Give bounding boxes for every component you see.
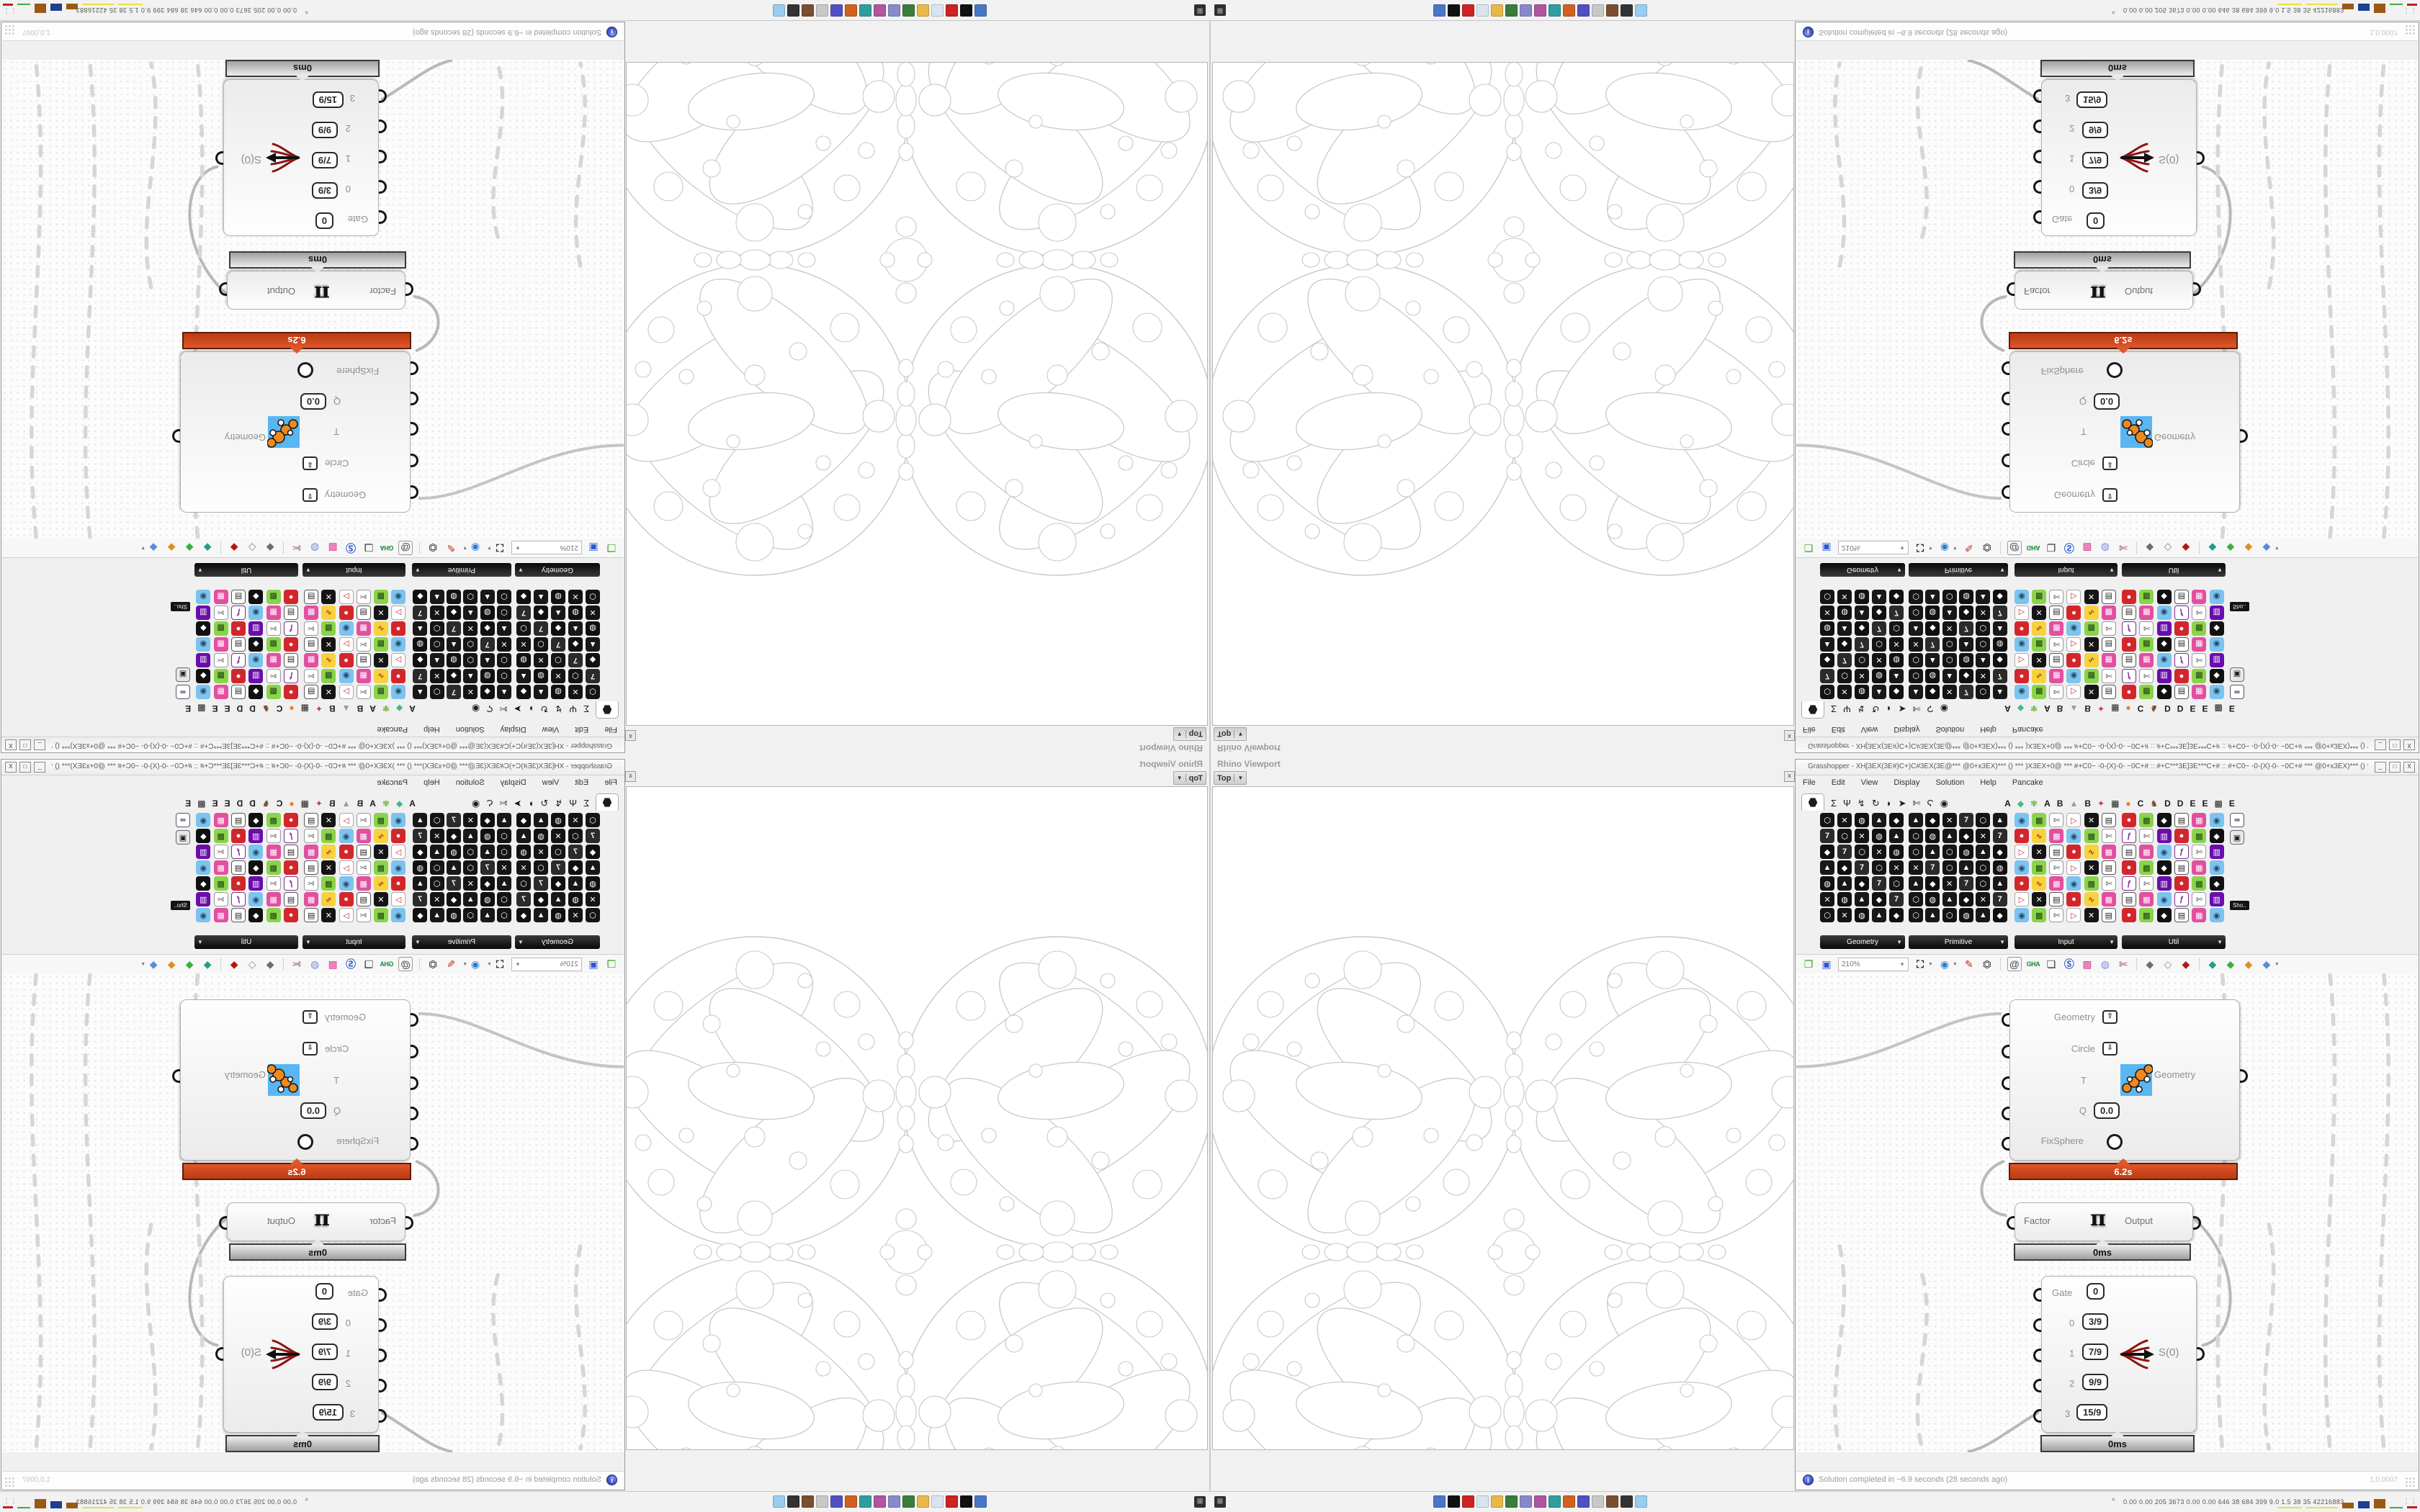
palette-component-icon[interactable]: ● xyxy=(284,908,298,922)
palette-component-icon[interactable]: ▷ xyxy=(2015,845,2029,859)
palette-component-icon[interactable]: ⬡ xyxy=(1872,860,1886,875)
package-icon[interactable]: ▩ xyxy=(2081,958,2094,971)
palette-component-icon[interactable]: ▷ xyxy=(2015,653,2029,667)
palette-component-icon[interactable]: ✕ xyxy=(2032,606,2046,620)
palette-component-icon[interactable]: ✕ xyxy=(568,590,583,604)
palette-component-icon[interactable]: 7 xyxy=(1820,829,1834,843)
palette-component-icon[interactable]: ◆ xyxy=(1925,685,1940,699)
palette-component-icon[interactable]: ▦ xyxy=(2139,892,2154,906)
palette-component-icon[interactable]: ▦ xyxy=(2102,606,2116,620)
palette-component-icon[interactable]: ● xyxy=(2174,669,2189,683)
tab-plugin-15[interactable]: E xyxy=(2202,701,2208,716)
tab-plugin-4[interactable]: B xyxy=(2057,796,2063,811)
palette-component-icon[interactable]: 7 xyxy=(1959,813,1973,827)
menu-item-view[interactable]: View xyxy=(1861,721,1878,734)
gate-value-box[interactable]: 3/9 xyxy=(2082,1313,2108,1330)
palette-component-icon[interactable]: ▩ xyxy=(2192,621,2206,636)
palette-component-icon[interactable]: ◍ xyxy=(1959,908,1973,922)
palette-component-icon[interactable]: ◍ xyxy=(1855,685,1869,699)
palette-component-icon[interactable]: ▦ xyxy=(2192,590,2206,604)
palette-component-icon[interactable]: ∿ xyxy=(2032,829,2046,843)
palette-component-icon[interactable]: ▲ xyxy=(551,606,565,620)
close-button[interactable]: X xyxy=(5,762,17,773)
palette-component-icon[interactable]: ● xyxy=(2015,621,2029,636)
gate-value-box[interactable]: 15/9 xyxy=(2076,91,2107,108)
palette-component-icon[interactable]: ◆ xyxy=(196,621,210,636)
taskbar-app-icon[interactable] xyxy=(1491,1495,1503,1508)
palette-component-icon[interactable]: ▦ xyxy=(357,876,371,891)
taskbar-app-icon[interactable] xyxy=(787,4,799,17)
palette-component-icon[interactable]: ◍ xyxy=(1959,845,1973,859)
palette-component-icon[interactable]: ◍ xyxy=(447,845,461,859)
palette-component-icon[interactable]: ▤ xyxy=(2049,653,2063,667)
palette-component-icon[interactable]: ◍ xyxy=(586,621,600,636)
menu-item-pancake[interactable]: Pancake xyxy=(377,721,408,734)
palette-component-icon[interactable]: ∿ xyxy=(321,653,336,667)
palette-component-icon[interactable]: ✕ xyxy=(1909,860,1923,875)
palette-component-icon[interactable]: ◍ xyxy=(1889,653,1904,667)
palette-component-icon[interactable]: ◆ xyxy=(196,669,210,683)
palette-component-icon[interactable]: ▩ xyxy=(2192,829,2206,843)
chevron-down-icon[interactable]: ▼ xyxy=(487,962,492,967)
palette-component-icon[interactable]: ⬡ xyxy=(1976,685,1990,699)
palette-component-icon[interactable]: ▦ xyxy=(266,653,281,667)
palette-component-icon[interactable]: ▩ xyxy=(2192,669,2206,683)
palette-component-icon[interactable]: ▦ xyxy=(2049,876,2063,891)
palette-component-icon[interactable]: ⬡ xyxy=(1909,669,1923,683)
palette-component-icon[interactable]: 7 xyxy=(1993,669,2007,683)
palette-component-icon[interactable]: ● xyxy=(339,606,354,620)
tab-plugin-4[interactable]: B xyxy=(357,796,364,811)
taskbar-app-icon[interactable] xyxy=(917,1495,929,1508)
fixsphere-toggle[interactable] xyxy=(2107,362,2123,378)
focus-extents-icon[interactable]: ⛶ xyxy=(1914,541,1927,554)
palette-component-icon[interactable]: ⬡ xyxy=(1837,669,1852,683)
palette-component-icon[interactable]: ⬡ xyxy=(497,845,511,859)
gate-value-box[interactable]: 15/9 xyxy=(313,91,344,108)
palette-component-icon[interactable]: ◉ xyxy=(2157,892,2172,906)
gha-assembler-icon[interactable]: GHA xyxy=(380,541,393,554)
palette-component-icon[interactable]: ◆ xyxy=(1959,606,1973,620)
palette-component-icon[interactable]: ✕ xyxy=(497,637,511,652)
taskbar-app-icon[interactable] xyxy=(1520,4,1532,17)
palette-component-icon[interactable]: ⬡ xyxy=(534,637,548,652)
menu-item-display[interactable]: Display xyxy=(501,778,526,791)
palette-component-icon[interactable]: ◉ xyxy=(2066,621,2081,636)
palette-component-icon[interactable]: ◉ xyxy=(2015,637,2029,652)
taskbar-app-icon[interactable] xyxy=(787,1495,799,1508)
palette-component-icon[interactable]: ● xyxy=(391,829,405,843)
palette-component-icon[interactable]: 7 xyxy=(586,829,600,843)
palette-component-icon[interactable]: ⬡ xyxy=(1909,590,1923,604)
palette-component-icon[interactable]: ▲ xyxy=(1993,685,2007,699)
palette-component-icon[interactable]: ⬡ xyxy=(1976,876,1990,891)
maximize-button[interactable]: □ xyxy=(2389,739,2401,750)
component-pi[interactable]: Factor π Output 0ms xyxy=(227,271,405,310)
palette-component-icon[interactable]: ▤ xyxy=(304,813,318,827)
palette-component-icon[interactable]: ◍ xyxy=(551,685,565,699)
tab-plugin-3[interactable]: A xyxy=(369,701,376,716)
component-pi[interactable]: Factor π Output 0ms xyxy=(2015,1202,2193,1241)
palette-component-icon[interactable]: ✄ xyxy=(2049,813,2063,827)
palette-component-icon[interactable]: ◉ xyxy=(391,860,405,875)
palette-component-icon[interactable]: ƒ xyxy=(231,606,246,620)
grasshopper-titlebar[interactable]: Grasshopper - XH[3EX(3E#)C+)C#3EX(3E@***… xyxy=(1796,737,2419,752)
palette-component-icon[interactable]: ✕ xyxy=(321,908,336,922)
tab-plugin-13[interactable]: D xyxy=(2177,796,2184,811)
taskbar-app-icon[interactable] xyxy=(1621,4,1633,17)
palette-component-icon[interactable]: ◍ xyxy=(1855,590,1869,604)
component-fixcircles[interactable]: Geometry ⇧ Circle ⇩ T Q 0.0 FixSphere xyxy=(2009,351,2240,513)
palette-component-icon[interactable]: ◆ xyxy=(568,637,583,652)
palette-component-icon[interactable]: ▷ xyxy=(339,860,354,875)
tab-icon-3[interactable]: ↻ xyxy=(1872,796,1880,811)
gate-value-box[interactable]: 0 xyxy=(315,212,333,229)
palette-component-icon[interactable]: 7 xyxy=(551,637,565,652)
palette-component-icon[interactable]: ◉ xyxy=(2210,908,2224,922)
menu-item-edit[interactable]: Edit xyxy=(1832,778,1845,791)
tab-plugin-17[interactable]: E xyxy=(185,701,191,716)
palette-component-icon[interactable]: ✕ xyxy=(321,637,336,652)
palette-component-icon[interactable]: ⬡ xyxy=(497,606,511,620)
palette-component-icon[interactable]: ⬡ xyxy=(1889,621,1904,636)
palette-component-icon[interactable]: ▤ xyxy=(2049,606,2063,620)
palette-component-icon[interactable]: ƒ xyxy=(2174,892,2189,906)
palette-component-icon[interactable]: ✕ xyxy=(321,685,336,699)
tab-icon-4[interactable]: ◗ xyxy=(1886,796,1892,811)
gem-outline-icon[interactable]: ◇ xyxy=(246,541,259,554)
palette-component-icon[interactable]: ▤ xyxy=(2122,892,2136,906)
palette-component-icon[interactable]: ◆ xyxy=(1837,860,1852,875)
palette-component-icon[interactable]: ▦ xyxy=(2139,653,2154,667)
palette-component-icon[interactable]: ✕ xyxy=(2084,637,2099,652)
palette-component-icon[interactable]: ◆ xyxy=(480,621,495,636)
palette-component-icon[interactable]: ◍ xyxy=(1820,876,1834,891)
palette-component-icon[interactable]: ◆ xyxy=(516,813,531,827)
palette-component-icon[interactable]: ▥ xyxy=(2210,653,2224,667)
gate-value-box[interactable]: 9/9 xyxy=(2082,122,2108,138)
search-script-icon[interactable]: Ⓢ xyxy=(344,541,357,554)
palette-component-icon[interactable]: ⬡ xyxy=(586,813,600,827)
start-button-icon[interactable]: ⊞ xyxy=(1214,4,1226,16)
palette-component-icon[interactable]: ● xyxy=(231,829,246,843)
palette-component-icon[interactable]: ⬡ xyxy=(1942,653,1957,667)
palette-component-icon[interactable]: 7 xyxy=(413,829,427,843)
palette-component-icon[interactable]: ◍ xyxy=(447,590,461,604)
palette-component-icon[interactable]: ⬡ xyxy=(430,621,444,636)
tab-plugin-12[interactable]: D xyxy=(249,701,256,716)
tab-plugin-14[interactable]: E xyxy=(2190,796,2195,811)
taskbar-app-icon[interactable] xyxy=(1491,4,1503,17)
tab-plugin-16[interactable]: ▩ xyxy=(197,796,205,811)
taskbar-app-icon[interactable] xyxy=(874,1495,886,1508)
tab-plugin-7[interactable]: ✦ xyxy=(315,796,323,811)
tab-plugin-10[interactable]: C xyxy=(277,796,283,811)
palette-component-icon[interactable]: ✕ xyxy=(1976,829,1990,843)
grasshopper-titlebar[interactable]: Grasshopper - XH[3EX(3E#)C+)C#3EX(3E@***… xyxy=(1,737,624,752)
gem-red-icon[interactable]: ◆ xyxy=(2179,958,2192,971)
palette-component-icon[interactable]: ◆ xyxy=(447,606,461,620)
tab-icon-7[interactable]: Ϛ xyxy=(486,796,493,811)
tab-icon-7[interactable]: Ϛ xyxy=(1927,796,1933,811)
palette-component-icon[interactable]: ▩ xyxy=(374,685,388,699)
tab-plugin-5[interactable]: ▲ xyxy=(2069,796,2078,811)
palette-component-icon[interactable]: ∿ xyxy=(374,876,388,891)
palette-component-icon[interactable]: ▦ xyxy=(2192,685,2206,699)
close-button[interactable]: X xyxy=(5,739,17,750)
palette-component-icon[interactable]: ◉ xyxy=(248,606,263,620)
palette-component-icon[interactable]: ✕ xyxy=(1855,829,1869,843)
palette-component-icon[interactable]: ● xyxy=(391,669,405,683)
palette-component-icon[interactable]: ƒ xyxy=(231,653,246,667)
palette-component-icon[interactable]: ▦ xyxy=(214,685,228,699)
rhino-viewport-canvas[interactable] xyxy=(626,62,1208,726)
save-document-icon[interactable]: ▣ xyxy=(1820,958,1833,971)
palette-component-icon[interactable]: ◉ xyxy=(2015,860,2029,875)
palette-component-icon[interactable]: ◆ xyxy=(2157,637,2172,652)
palette-component-icon[interactable]: ▤ xyxy=(2174,813,2189,827)
palette-component-icon[interactable]: 7 xyxy=(447,685,461,699)
palette-component-icon[interactable]: ◆ xyxy=(248,637,263,652)
palette-component-icon[interactable]: 7 xyxy=(1959,685,1973,699)
palette-component-icon[interactable]: ✕ xyxy=(1889,637,1904,652)
palette-component-icon[interactable]: ▲ xyxy=(1942,669,1957,683)
palette-component-icon[interactable]: ∞ xyxy=(176,685,190,699)
palette-component-icon[interactable]: ⬡ xyxy=(1820,908,1834,922)
palette-component-icon[interactable]: ✕ xyxy=(534,653,548,667)
gem-red-icon[interactable]: ◆ xyxy=(228,541,241,554)
palette-component-icon[interactable]: ⬡ xyxy=(463,908,478,922)
palette-component-icon[interactable]: ⬡ xyxy=(497,669,511,683)
tab-params-selected[interactable] xyxy=(596,793,619,811)
preview-orange-icon[interactable]: ◆ xyxy=(2242,541,2255,554)
preview-orange-icon[interactable]: ◆ xyxy=(2242,958,2255,971)
palette-component-icon[interactable]: ▥ xyxy=(2210,845,2224,859)
paint-jug-icon[interactable]: ⏣ xyxy=(1981,541,1994,554)
palette-component-icon[interactable]: ▲ xyxy=(1872,590,1886,604)
palette-component-icon[interactable]: ▲ xyxy=(1976,845,1990,859)
palette-component-icon[interactable]: ◆ xyxy=(1993,590,2007,604)
zoom-level-select[interactable]: 210%▼ xyxy=(1838,541,1909,555)
palette-component-icon[interactable]: ▤ xyxy=(304,908,318,922)
menu-item-file[interactable]: File xyxy=(604,721,617,734)
palette-component-icon[interactable]: ▥ xyxy=(2210,892,2224,906)
palette-component-icon[interactable]: ◍ xyxy=(1993,637,2007,652)
palette-component-icon[interactable]: ✄ xyxy=(357,908,371,922)
palette-component-icon[interactable]: ▲ xyxy=(568,876,583,891)
palette-category-util[interactable]: Util▼ xyxy=(194,563,298,577)
palette-component-icon[interactable]: ▲ xyxy=(480,845,495,859)
open-document-icon[interactable]: ❐ xyxy=(605,541,618,554)
gate-value-box[interactable]: 7/9 xyxy=(312,1344,338,1360)
palette-component-icon[interactable]: ƒ xyxy=(2122,876,2136,891)
tab-icon-3[interactable]: ↻ xyxy=(540,701,548,716)
menu-item-pancake[interactable]: Pancake xyxy=(2012,721,2043,734)
palette-component-icon[interactable]: ◉ xyxy=(2015,908,2029,922)
tab-plugin-10[interactable]: C xyxy=(2138,701,2144,716)
palette-component-icon[interactable]: ▩ xyxy=(2139,860,2154,875)
palette-component-icon[interactable]: ◆ xyxy=(568,860,583,875)
preview-orange-icon[interactable]: ◆ xyxy=(165,541,178,554)
graft-button[interactable]: ⇩ xyxy=(302,1042,318,1056)
palette-component-icon[interactable]: ◆ xyxy=(2210,669,2224,683)
palette-component-icon[interactable]: ▲ xyxy=(516,669,531,683)
palette-component-icon[interactable]: 7 xyxy=(1872,876,1886,891)
component-pi[interactable]: Factor π Output 0ms xyxy=(227,1202,405,1241)
palette-component-icon[interactable]: ▦ xyxy=(266,892,281,906)
palette-component-icon[interactable]: ▲ xyxy=(1976,590,1990,604)
palette-component-icon[interactable]: ◉ xyxy=(2157,606,2172,620)
palette-component-icon[interactable]: ✄ xyxy=(304,621,318,636)
tab-plugin-7[interactable]: ✦ xyxy=(315,701,323,716)
tab-icon-5[interactable]: ➤ xyxy=(514,796,522,811)
window-edit-icon[interactable]: ❏ xyxy=(2045,958,2058,971)
palette-component-icon[interactable]: ▤ xyxy=(357,606,371,620)
palette-component-icon[interactable]: ◉ xyxy=(2157,845,2172,859)
palette-component-icon[interactable]: ⬡ xyxy=(1889,876,1904,891)
taskbar-app-icon[interactable] xyxy=(1549,4,1561,17)
palette-component-icon[interactable]: ▤ xyxy=(284,892,298,906)
gha-assembler-icon[interactable]: GHA xyxy=(2027,541,2040,554)
palette-component-icon[interactable]: ✕ xyxy=(1889,860,1904,875)
palette-component-icon[interactable]: ▷ xyxy=(2066,685,2081,699)
palette-component-icon[interactable]: ▷ xyxy=(2015,892,2029,906)
palette-component-icon[interactable]: ▲ xyxy=(1925,845,1940,859)
palette-component-icon[interactable]: ◆ xyxy=(413,908,427,922)
palette-component-icon[interactable]: ▥ xyxy=(248,669,263,683)
tab-plugin-14[interactable]: E xyxy=(2190,701,2195,716)
palette-component-icon[interactable]: ⬡ xyxy=(551,845,565,859)
palette-component-icon[interactable]: ⬡ xyxy=(568,829,583,843)
palette-component-icon[interactable]: ◆ xyxy=(248,813,263,827)
taskbar-app-icon[interactable] xyxy=(1433,4,1446,17)
palette-component-icon[interactable]: ◆ xyxy=(447,892,461,906)
palette-component-icon[interactable]: ✕ xyxy=(1837,908,1852,922)
palette-component-icon[interactable]: ◉ xyxy=(2210,685,2224,699)
grasshopper-canvas[interactable]: Geometry ⇧ Circle ⇩ T Q 0.0 FixSphere xyxy=(2,60,624,539)
palette-component-icon[interactable]: ✕ xyxy=(2032,892,2046,906)
palette-component-icon[interactable]: ✕ xyxy=(321,860,336,875)
chevron-down-icon[interactable]: ▼ xyxy=(487,546,492,551)
palette-component-icon[interactable]: ⬡ xyxy=(497,908,511,922)
focus-extents-icon[interactable]: ⛶ xyxy=(1914,958,1927,971)
taskbar-app-icon[interactable] xyxy=(1592,1495,1604,1508)
palette-component-icon[interactable]: ✄ xyxy=(266,876,281,891)
palette-component-icon[interactable]: ▷ xyxy=(2066,813,2081,827)
palette-component-icon[interactable]: ⬡ xyxy=(1942,637,1957,652)
palette-component-icon[interactable]: ▲ xyxy=(1909,813,1923,827)
gem-gray-icon[interactable]: ◆ xyxy=(2143,958,2156,971)
gate-value-box[interactable]: 9/9 xyxy=(312,1374,338,1390)
palette-component-icon[interactable]: ▩ xyxy=(214,621,228,636)
tab-plugin-16[interactable]: ▩ xyxy=(2214,796,2222,811)
palette-component-icon[interactable]: ◆ xyxy=(413,590,427,604)
palette-component-icon[interactable]: ⬡ xyxy=(1909,845,1923,859)
tab-plugin-1[interactable]: ◆ xyxy=(396,701,403,716)
palette-component-icon[interactable]: ◆ xyxy=(196,876,210,891)
window-edit-icon[interactable]: ❏ xyxy=(362,958,375,971)
palette-component-icon[interactable]: 7 xyxy=(534,876,548,891)
taskbar-app-icon[interactable] xyxy=(859,4,871,17)
tab-plugin-10[interactable]: C xyxy=(2138,796,2144,811)
tab-plugin-8[interactable]: ▦ xyxy=(2111,796,2119,811)
palette-component-icon[interactable]: ◉ xyxy=(339,829,354,843)
palette-component-icon[interactable]: ▤ xyxy=(357,845,371,859)
menu-item-edit[interactable]: Edit xyxy=(1832,721,1845,734)
tab-plugin-0[interactable]: A xyxy=(2004,701,2011,716)
palette-component-icon[interactable]: 7 xyxy=(1993,606,2007,620)
palette-component-icon[interactable]: ◉ xyxy=(2210,813,2224,827)
grasshopper-canvas[interactable]: Geometry ⇧ Circle ⇩ T Q 0.0 FixSphere xyxy=(1796,60,2418,539)
start-button-icon[interactable]: ⊞ xyxy=(1194,4,1206,16)
palette-component-icon[interactable]: ⬡ xyxy=(463,653,478,667)
palette-component-icon[interactable]: ƒ xyxy=(2122,829,2136,843)
chevron-down-icon[interactable]: ▼ xyxy=(1928,546,1933,551)
tab-icon-3[interactable]: ↻ xyxy=(1872,701,1880,716)
palette-component-icon[interactable]: ● xyxy=(2174,876,2189,891)
palette-component-icon[interactable]: ◆ xyxy=(2157,685,2172,699)
tab-plugin-3[interactable]: A xyxy=(369,796,376,811)
taskbar-app-icon[interactable] xyxy=(888,4,900,17)
palette-category-primitive[interactable]: Primitive▼ xyxy=(1909,563,2008,577)
palette-component-icon[interactable]: ✄ xyxy=(214,892,228,906)
tab-plugin-17[interactable]: E xyxy=(2229,796,2235,811)
palette-component-icon[interactable]: ⬡ xyxy=(497,829,511,843)
palette-component-icon[interactable]: ƒ xyxy=(284,669,298,683)
palette-component-icon[interactable]: ◆ xyxy=(1889,685,1904,699)
palette-category-util[interactable]: Util▼ xyxy=(2122,935,2226,949)
palette-component-icon[interactable]: ▲ xyxy=(1837,621,1852,636)
palette-component-icon[interactable]: 7 xyxy=(413,606,427,620)
tab-icon-4[interactable]: ◗ xyxy=(528,796,534,811)
palette-component-icon[interactable]: ⬡ xyxy=(1909,606,1923,620)
preview-teal-icon[interactable]: ◆ xyxy=(2206,958,2219,971)
palette-component-icon[interactable]: ◆ xyxy=(534,606,548,620)
menu-item-help[interactable]: Help xyxy=(423,721,440,734)
chevron-down-icon[interactable]: ▼ xyxy=(1177,775,1183,781)
palette-component-icon[interactable]: ⬡ xyxy=(1820,813,1834,827)
tab-icon-1[interactable]: Ψ xyxy=(569,796,577,811)
paint-jug-icon[interactable]: ⏣ xyxy=(426,958,439,971)
tab-plugin-6[interactable]: B xyxy=(2084,796,2091,811)
menu-item-solution[interactable]: Solution xyxy=(1935,721,1964,734)
start-button-icon[interactable]: ⊞ xyxy=(1194,1496,1206,1508)
palette-component-icon[interactable]: ◍ xyxy=(1837,606,1852,620)
rhino-viewport-canvas[interactable] xyxy=(1212,786,1794,1450)
tray-expand-icon[interactable]: ^ xyxy=(2112,6,2115,14)
palette-component-icon[interactable]: ▩ xyxy=(2139,590,2154,604)
gate-value-box[interactable]: 3/9 xyxy=(312,182,338,199)
maximize-button[interactable]: □ xyxy=(19,739,31,750)
palette-component-icon[interactable]: ▩ xyxy=(2084,876,2099,891)
palette-component-icon[interactable]: ✕ xyxy=(1820,606,1834,620)
palette-category-util[interactable]: Util▼ xyxy=(194,935,298,949)
palette-component-icon[interactable]: ◍ xyxy=(1855,813,1869,827)
palette-component-icon[interactable]: ▲ xyxy=(430,845,444,859)
palette-component-icon[interactable]: 7 xyxy=(534,621,548,636)
palette-component-icon[interactable]: ● xyxy=(2174,829,2189,843)
palette-component-icon[interactable]: ◆ xyxy=(1820,653,1834,667)
tab-plugin-11[interactable]: ♞ xyxy=(2150,701,2158,716)
tab-params-selected[interactable] xyxy=(1801,793,1824,811)
gate-value-box[interactable]: 7/9 xyxy=(2082,1344,2108,1360)
palette-component-icon[interactable]: ▤ xyxy=(284,606,298,620)
palette-component-icon[interactable]: ▲ xyxy=(497,621,511,636)
palette-component-icon[interactable]: ✄ xyxy=(2139,669,2154,683)
taskbar-app-icon[interactable] xyxy=(1635,1495,1647,1508)
palette-component-icon[interactable]: ✄ xyxy=(2192,845,2206,859)
palette-component-icon[interactable]: ✕ xyxy=(516,860,531,875)
